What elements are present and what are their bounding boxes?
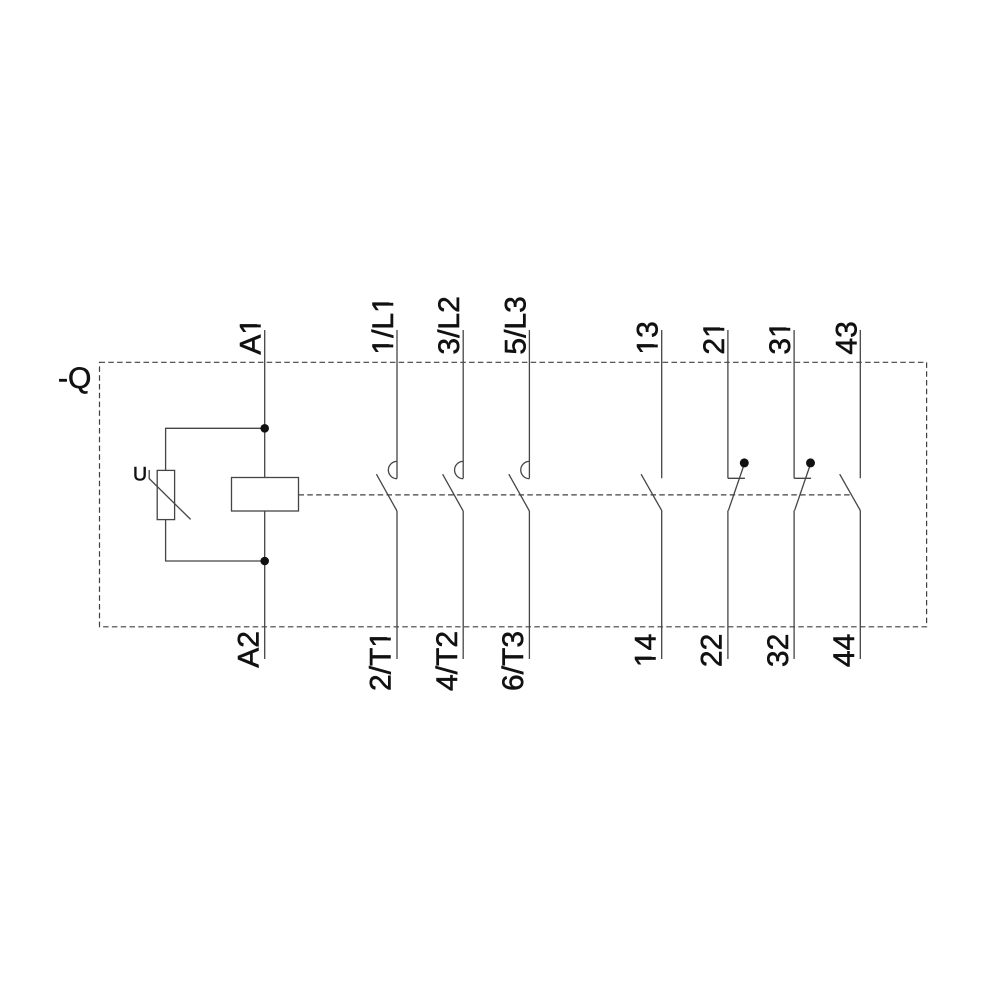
svg-text:3/L2: 3/L2 bbox=[433, 296, 466, 354]
svg-text:2/T1: 2/T1 bbox=[365, 631, 398, 691]
svg-text:44: 44 bbox=[828, 634, 861, 667]
svg-text:1/L1: 1/L1 bbox=[367, 296, 400, 354]
svg-text:22: 22 bbox=[696, 634, 729, 667]
svg-text:4/T2: 4/T2 bbox=[431, 631, 464, 691]
svg-text:5/L3: 5/L3 bbox=[499, 296, 532, 354]
svg-text:-Q: -Q bbox=[58, 362, 91, 395]
svg-text:6/T3: 6/T3 bbox=[497, 631, 530, 691]
svg-text:43: 43 bbox=[830, 321, 863, 354]
svg-text:32: 32 bbox=[762, 634, 795, 667]
svg-text:A2: A2 bbox=[232, 631, 265, 668]
svg-text:U: U bbox=[133, 464, 147, 486]
